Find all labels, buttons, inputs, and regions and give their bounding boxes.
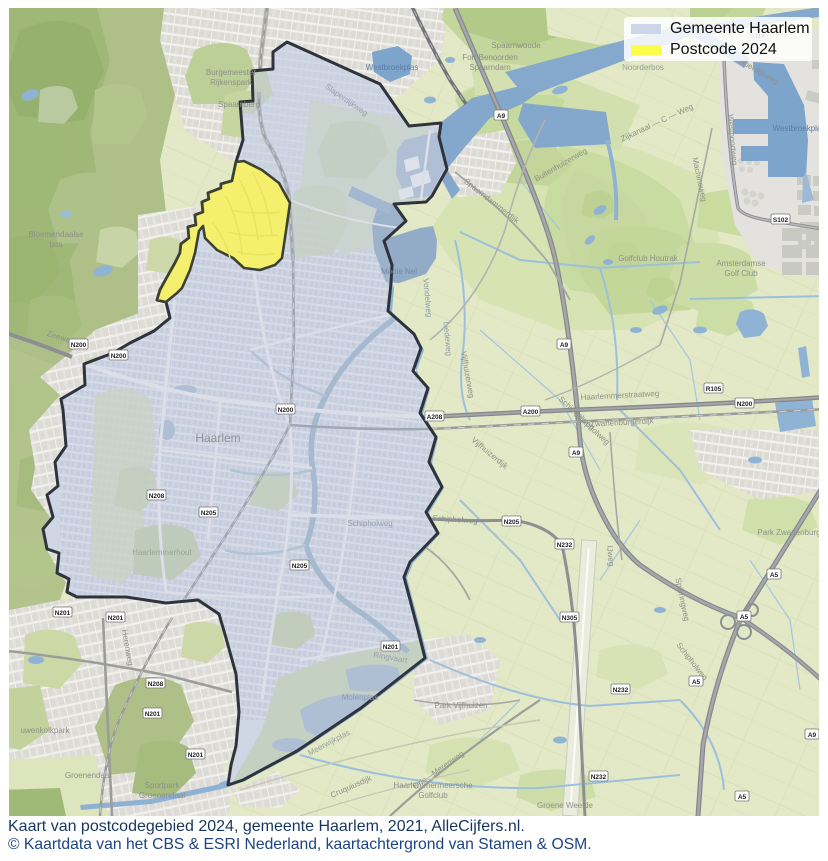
svg-text:A200: A200 (523, 409, 539, 416)
svg-text:N205: N205 (201, 510, 217, 517)
svg-text:N208: N208 (149, 493, 165, 500)
svg-text:A9: A9 (572, 450, 581, 457)
svg-text:Amsterdamse: Amsterdamse (716, 259, 766, 268)
svg-text:Groenendaal: Groenendaal (65, 771, 111, 780)
svg-text:Groene Weelde: Groene Weelde (537, 801, 593, 810)
svg-text:S102: S102 (773, 217, 789, 224)
svg-text:Bloemendaalse: Bloemendaalse (28, 230, 84, 239)
svg-text:Noorderbos: Noorderbos (622, 63, 664, 72)
svg-text:N205: N205 (504, 519, 520, 526)
svg-text:R105: R105 (706, 386, 722, 393)
svg-text:N201: N201 (108, 615, 124, 622)
svg-text:Park Zwanenburg: Park Zwanenburg (757, 528, 820, 537)
svg-text:bos: bos (50, 240, 63, 249)
svg-text:Spaarnwoude: Spaarnwoude (491, 41, 541, 50)
svg-text:Haarlemmerhout: Haarlemmerhout (132, 548, 192, 557)
svg-text:Golf Club: Golf Club (724, 269, 758, 278)
svg-text:Groenendaal: Groenendaal (139, 791, 185, 800)
svg-text:Molenplas: Molenplas (342, 693, 378, 702)
svg-text:Park Vijfhuizen: Park Vijfhuizen (434, 701, 487, 710)
svg-text:Sportpark: Sportpark (145, 781, 181, 790)
svg-text:N200: N200 (111, 353, 127, 360)
svg-text:N200: N200 (71, 342, 87, 349)
svg-text:Golfclub Houtrak: Golfclub Houtrak (618, 254, 679, 263)
svg-text:A9: A9 (560, 342, 569, 349)
svg-text:Spaarndam: Spaarndam (469, 63, 511, 72)
svg-text:uwenkolkpark: uwenkolkpark (21, 726, 71, 735)
svg-text:N201: N201 (383, 644, 399, 651)
svg-text:N232: N232 (591, 774, 607, 781)
svg-text:Spaarnberg: Spaarnberg (218, 100, 260, 109)
svg-text:Haarlemmermeersche: Haarlemmermeersche (393, 781, 473, 790)
svg-text:IJweg: IJweg (605, 545, 616, 567)
svg-text:Golfclub: Golfclub (418, 791, 448, 800)
svg-text:A9: A9 (497, 113, 506, 120)
svg-text:N201: N201 (188, 752, 204, 759)
svg-text:Rijkenspark: Rijkenspark (210, 78, 253, 87)
svg-text:A5: A5 (740, 614, 749, 621)
svg-text:Burgemeester: Burgemeester (206, 68, 257, 77)
svg-text:N232: N232 (613, 687, 629, 694)
svg-text:Haarlem: Haarlem (195, 431, 240, 445)
svg-text:N205: N205 (292, 563, 308, 570)
svg-text:A5: A5 (692, 679, 701, 686)
svg-text:A5: A5 (770, 572, 779, 579)
svg-text:N208: N208 (148, 681, 164, 688)
svg-text:N305: N305 (562, 615, 578, 622)
svg-text:Westbroekplas: Westbroekplas (773, 124, 826, 133)
svg-text:N201: N201 (145, 711, 161, 718)
svg-text:Mooie Nel: Mooie Nel (381, 267, 417, 276)
svg-text:N232: N232 (557, 542, 573, 549)
svg-text:A208: A208 (427, 414, 443, 421)
svg-text:N200: N200 (737, 401, 753, 408)
svg-text:Fort Benoorden: Fort Benoorden (462, 53, 518, 62)
svg-text:A5: A5 (738, 794, 747, 801)
svg-text:Westbroekplas: Westbroekplas (366, 63, 419, 72)
svg-text:N200: N200 (278, 407, 294, 414)
svg-text:Schipholweg: Schipholweg (347, 519, 392, 528)
svg-text:N201: N201 (55, 610, 71, 617)
svg-text:A9: A9 (808, 732, 817, 739)
